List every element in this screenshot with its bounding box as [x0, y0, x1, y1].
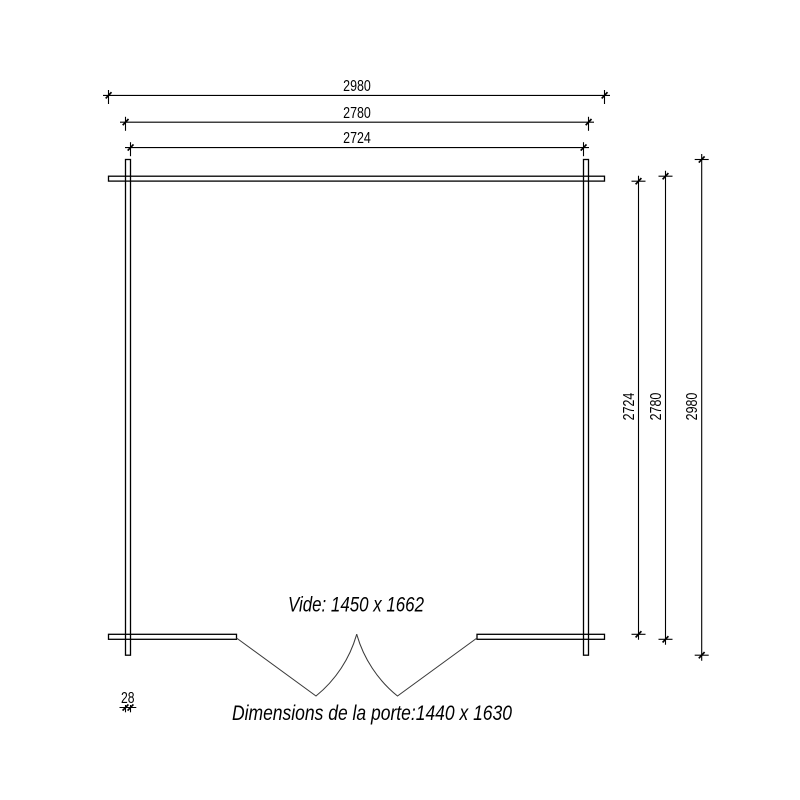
svg-text:Dimensions de la porte:1440 x: Dimensions de la porte:1440 x 1630 [232, 701, 512, 725]
svg-text:Vide: 1450 x 1662: Vide: 1450 x 1662 [288, 594, 424, 617]
svg-text:2724: 2724 [343, 130, 371, 147]
svg-text:2724: 2724 [621, 392, 638, 420]
svg-text:2980: 2980 [343, 78, 371, 95]
svg-text:28: 28 [121, 690, 135, 707]
svg-text:2980: 2980 [684, 392, 701, 420]
svg-text:2780: 2780 [648, 392, 665, 420]
svg-text:2780: 2780 [343, 105, 371, 122]
